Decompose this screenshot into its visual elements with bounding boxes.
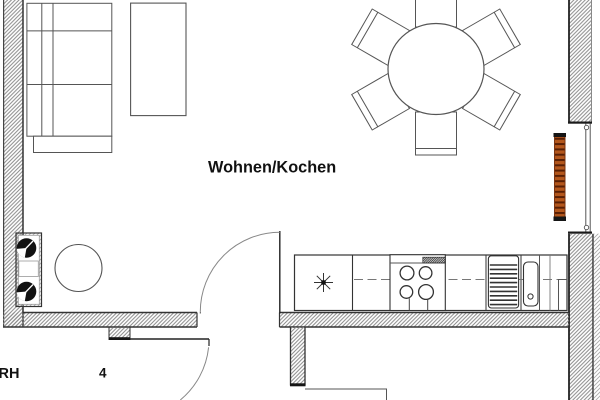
- svg-text:4: 4: [99, 366, 107, 381]
- svg-text:RH: RH: [0, 366, 19, 382]
- svg-text:Wohnen/Kochen: Wohnen/Kochen: [208, 159, 336, 177]
